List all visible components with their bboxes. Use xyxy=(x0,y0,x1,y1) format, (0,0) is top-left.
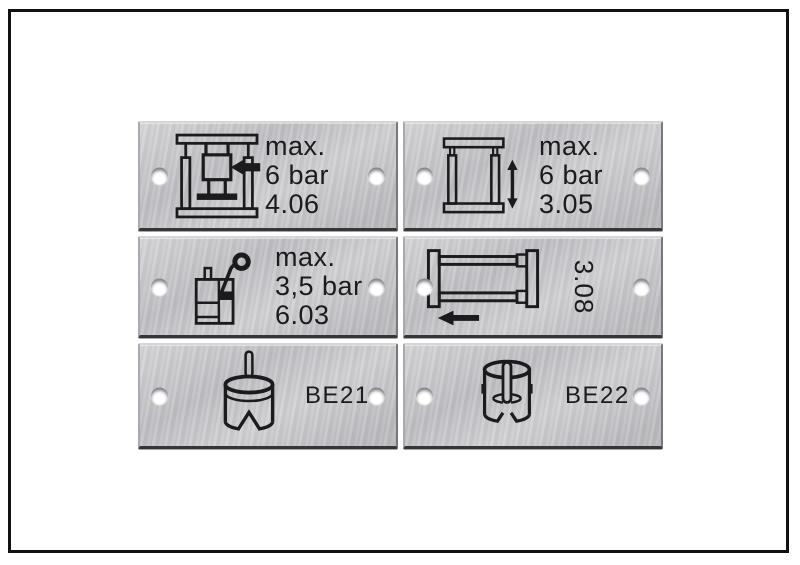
press-clamp-arrow-icon xyxy=(171,130,263,222)
plate-frame-vertical-travel: max. 6 bar 3.05 xyxy=(403,121,663,231)
mounting-hole-left xyxy=(151,387,168,404)
cylinder-pin-icon xyxy=(471,352,543,440)
mounting-hole-left xyxy=(151,167,168,184)
code-label: BE22 xyxy=(565,382,630,410)
mounting-hole-right xyxy=(368,278,385,295)
plate-press-max-pressure: max. 6 bar 4.06 xyxy=(138,121,398,231)
tank-gauge-icon xyxy=(189,244,253,329)
label-line: 3.05 xyxy=(539,190,603,219)
label-line: max. xyxy=(265,132,329,161)
label-photo-canvas: max. 6 bar 4.06 max. 6 bar 3.05 xyxy=(0,0,800,565)
cylinder-rod-icon xyxy=(211,349,287,442)
plates-grid: max. 6 bar 4.06 max. 6 bar 3.05 xyxy=(138,121,663,449)
mounting-hole-left xyxy=(416,167,433,184)
mounting-hole-left xyxy=(416,387,433,404)
label-line: 4.06 xyxy=(265,190,329,219)
label-line: 6 bar xyxy=(539,161,603,190)
code-label: BE21 xyxy=(305,382,370,410)
label-line: 6 bar xyxy=(265,161,329,190)
mounting-hole-left xyxy=(151,278,168,295)
label-line: 3,5 bar xyxy=(275,272,363,301)
label-line: max. xyxy=(275,243,363,272)
plate-be22: BE22 xyxy=(403,343,663,449)
mounting-hole-right xyxy=(633,387,650,404)
plate-lubricator-max-pressure: max. 3,5 bar 6.03 xyxy=(138,236,398,338)
label-line: max. xyxy=(539,132,603,161)
pressure-text-block: max. 6 bar 4.06 xyxy=(265,132,329,219)
mounting-hole-right xyxy=(633,167,650,184)
plate-slide-unit: 3.08 xyxy=(403,236,663,338)
pressure-text-block: max. 3,5 bar 6.03 xyxy=(275,243,363,330)
pressure-text-block: max. 6 bar 3.05 xyxy=(539,132,603,219)
frame-left-arrow-icon xyxy=(424,246,542,327)
mounting-hole-right xyxy=(633,278,650,295)
frame-vertical-arrow-icon xyxy=(435,133,521,219)
mounting-hole-right xyxy=(368,387,385,404)
label-line: 6.03 xyxy=(275,301,363,330)
mounting-hole-right xyxy=(368,167,385,184)
plate-be21: BE21 xyxy=(138,343,398,449)
mounting-hole-left xyxy=(416,278,433,295)
rotated-code-label: 3.08 xyxy=(568,259,599,314)
